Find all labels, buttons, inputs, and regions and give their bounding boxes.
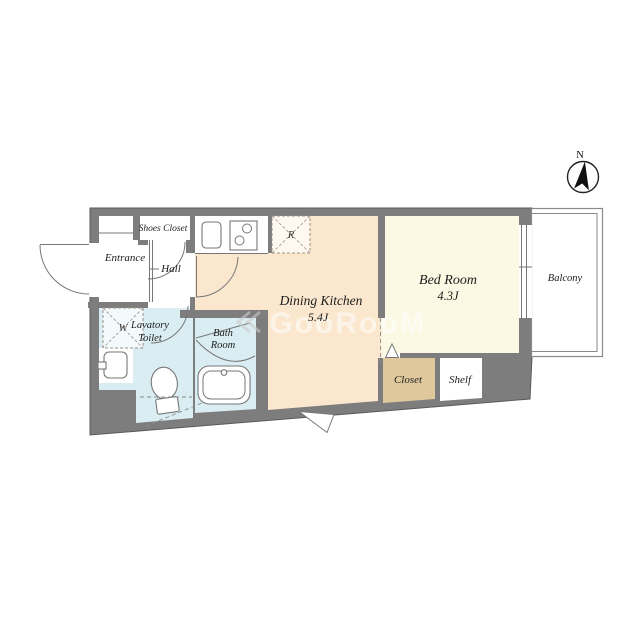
- kitchen-sink-icon: [202, 222, 221, 248]
- bath-label-line2: Room: [210, 340, 236, 351]
- floorplan: GooRooM N Shoes Closet Entrance Hall Lav…: [0, 0, 640, 640]
- floorplan-page: GooRooM N Shoes Closet Entrance Hall Lav…: [0, 0, 640, 640]
- bed-room-label: Bed Room: [419, 273, 477, 288]
- north-label: N: [576, 150, 584, 161]
- bath-label-line1: Bath: [213, 328, 233, 339]
- lavatory-label-line1: Lavatory: [130, 320, 169, 331]
- shoes-closet-label: Shoes Closet: [139, 224, 188, 234]
- hall-doorway-gap: [190, 253, 195, 297]
- closet-label: Closet: [394, 374, 423, 386]
- shelf-label: Shelf: [449, 374, 473, 386]
- bathtub-icon: [198, 366, 250, 404]
- washer-label: W: [119, 323, 129, 334]
- dining-kitchen-size: 5.4J: [308, 310, 329, 324]
- refrigerator-label: R: [287, 230, 295, 241]
- bed-room-size: 4.3J: [437, 289, 460, 303]
- balcony-label: Balcony: [548, 273, 583, 284]
- watermark-text: GooRooM: [269, 307, 426, 340]
- entrance-label: Entrance: [104, 252, 145, 264]
- bottom-door-wedge: [299, 412, 334, 433]
- stove-icon: [230, 221, 257, 250]
- hall-label: Hall: [160, 263, 181, 275]
- kitchen-counter: [195, 216, 268, 254]
- dining-kitchen-label: Dining Kitchen: [279, 293, 363, 308]
- lavatory-label-line2: Toilet: [138, 333, 163, 344]
- entrance-door: [40, 245, 89, 295]
- compass-icon: N: [568, 150, 599, 193]
